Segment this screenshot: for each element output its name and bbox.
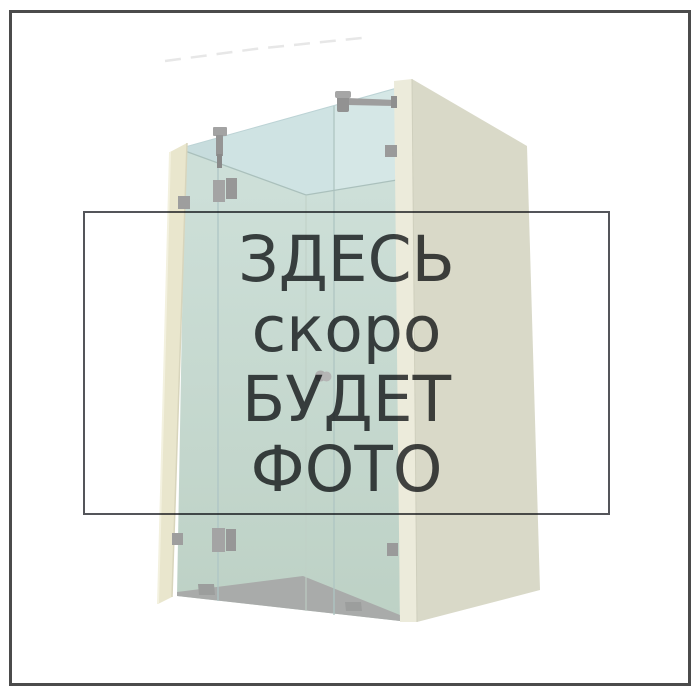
support-bar-wall-plate [391, 96, 397, 108]
ghost-rail-line [165, 38, 362, 61]
hinge-top-left-b [226, 178, 237, 199]
floor-guide-left [198, 584, 215, 595]
glass-panel-upper [185, 88, 397, 195]
notice-line-1: ЗДЕСЬ [238, 225, 455, 295]
hinge-top-left-a [213, 180, 225, 202]
placeholder-image: ЗДЕСЬ скоро БУДЕТ ФОТО [0, 0, 700, 700]
glass-top-edge [185, 88, 397, 147]
pillar-bracket-top [178, 196, 190, 209]
pillar-bracket-bottom [172, 533, 183, 545]
support-bar-clamp [337, 92, 349, 112]
back-wall-top-edge [185, 151, 397, 195]
notice-line-2: скоро [252, 295, 442, 365]
hinge-top-right [385, 145, 397, 157]
hinge-bottom-right [387, 543, 398, 556]
photo-coming-soon-box: ЗДЕСЬ скоро БУДЕТ ФОТО [83, 211, 610, 515]
support-bar-clamp-cap [335, 91, 351, 98]
notice-line-3: БУДЕТ [242, 365, 451, 435]
support-bar [347, 98, 396, 106]
notice-line-4: ФОТО [251, 435, 443, 505]
glass-panel-upper-left [185, 138, 218, 162]
shower-floor [177, 576, 400, 621]
glass-panel-upper-right [334, 88, 397, 190]
pivot-pin-cap [213, 127, 227, 136]
hinge-bottom-left-a [212, 528, 225, 552]
hinge-bottom-left-b [226, 529, 236, 551]
floor-guide-right [345, 602, 362, 611]
pivot-pin-stem-lower [217, 154, 222, 168]
pivot-pin-stem [216, 135, 223, 156]
